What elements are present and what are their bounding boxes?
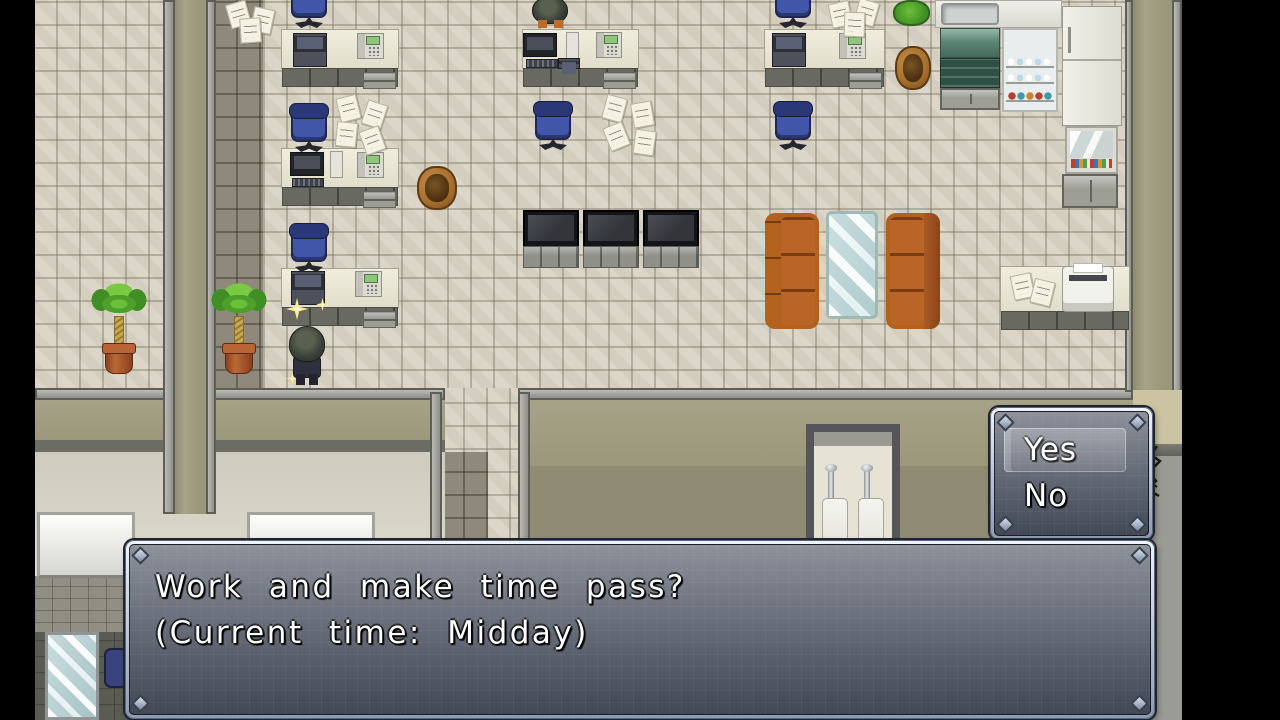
computer-tower xyxy=(566,32,579,59)
keyboard xyxy=(526,59,558,68)
keyboard xyxy=(292,178,324,187)
desk-panel xyxy=(1001,311,1129,330)
potted-plant xyxy=(102,282,136,378)
glass-table xyxy=(826,211,878,319)
tv-stand xyxy=(583,246,639,268)
barrel xyxy=(417,166,457,210)
green-counter xyxy=(940,28,1000,58)
desk-phone xyxy=(357,33,384,59)
papers xyxy=(630,100,655,128)
cup-row xyxy=(1006,56,1054,68)
plant-pot xyxy=(105,344,133,374)
whiteboard xyxy=(37,512,135,578)
player-hair xyxy=(289,326,325,362)
desk-drawer xyxy=(363,72,396,89)
papers xyxy=(335,121,358,148)
couch-backrest xyxy=(765,213,781,329)
desk-phone xyxy=(596,32,622,58)
wall-cap xyxy=(35,388,175,400)
potted-plant xyxy=(222,282,256,378)
laptop xyxy=(293,33,327,67)
right-wall xyxy=(1133,0,1173,392)
npc-shoulder xyxy=(538,20,547,28)
right-wall-outer-cap xyxy=(1172,0,1182,456)
green-cabinet-drawers xyxy=(940,58,1000,88)
corner-ornament-icon xyxy=(134,697,147,710)
office-chair xyxy=(291,230,327,262)
corner-ornament-icon xyxy=(1131,518,1144,531)
corner-ornament-icon xyxy=(134,549,147,562)
game-screen: Yes No Work and make time pass? (Current… xyxy=(0,0,1280,720)
monitor xyxy=(523,33,557,57)
choice-label: No xyxy=(1024,474,1142,519)
corner-ornament-icon xyxy=(999,518,1012,531)
laptop-small xyxy=(558,58,580,69)
message-line: Work and make time pass? xyxy=(155,564,1115,610)
refrigerator xyxy=(1062,6,1122,126)
desk-drawer xyxy=(363,191,396,208)
wall-cap xyxy=(518,388,1133,400)
desk-drawer xyxy=(849,72,882,89)
desk-phone xyxy=(357,152,384,178)
couch xyxy=(886,213,940,329)
divider-wall-cap xyxy=(206,0,216,514)
tv-screen xyxy=(583,210,639,248)
npc-sprite xyxy=(532,0,568,28)
wall-cap xyxy=(430,392,442,542)
computer-tower xyxy=(330,151,343,178)
message-line: (Current time: Midday) xyxy=(155,610,1115,656)
corner-ornament-icon xyxy=(999,416,1012,429)
papers xyxy=(632,129,656,157)
papers xyxy=(844,12,866,38)
urinal-pipe xyxy=(864,470,870,500)
choice-option-no[interactable]: No xyxy=(1008,474,1142,519)
corner-ornament-icon xyxy=(1133,697,1146,710)
bottle-row xyxy=(1006,90,1054,102)
couch-cushions xyxy=(890,217,924,325)
desk-drawer xyxy=(603,72,636,89)
rooms-wall-top xyxy=(35,398,445,442)
laptop xyxy=(291,271,325,305)
npc-shoulder xyxy=(554,20,563,28)
urinal-pipe xyxy=(828,470,834,500)
player-sprite xyxy=(288,326,326,386)
couch-cushions xyxy=(781,217,815,325)
desk-phone xyxy=(355,271,382,297)
office-chair xyxy=(775,108,811,140)
corner-ornament-icon xyxy=(1133,549,1146,562)
plant-pot xyxy=(225,344,253,374)
cabinet-base xyxy=(940,88,1000,110)
message-text-block: Work and make time pass? (Current time: … xyxy=(155,564,1115,684)
desk-drawer xyxy=(363,311,396,328)
plant-leaves xyxy=(91,282,147,322)
office-chair xyxy=(291,110,327,142)
divider-wall xyxy=(175,0,206,514)
potted-plant-top xyxy=(893,0,930,26)
message-window-body: Work and make time pass? (Current time: … xyxy=(129,544,1151,715)
divider-wall-cap xyxy=(163,0,175,514)
player-leg xyxy=(309,374,318,385)
tv-screen xyxy=(523,210,579,248)
barrel xyxy=(895,46,931,90)
dish-shelf xyxy=(1002,28,1058,112)
papers xyxy=(239,17,262,43)
sink xyxy=(941,3,999,25)
tv-stand xyxy=(643,246,699,268)
office-chair xyxy=(775,0,811,18)
bookshelf xyxy=(1065,126,1118,174)
corner-ornament-icon xyxy=(1131,416,1144,429)
bathroom-interior-trim xyxy=(814,432,892,446)
office-chair xyxy=(535,108,571,140)
wall-cap xyxy=(518,392,530,542)
monitor xyxy=(290,152,324,176)
wall-cap xyxy=(208,388,445,400)
selection-cursor xyxy=(1004,428,1126,472)
couch xyxy=(765,213,819,329)
choice-window-body: Yes No xyxy=(994,411,1149,536)
tv-screen xyxy=(643,210,699,248)
player-leg xyxy=(296,374,305,385)
choice-window: Yes No xyxy=(990,407,1153,540)
corridor-shadow xyxy=(442,452,488,540)
right-wall-cap xyxy=(1125,0,1133,392)
glass-row xyxy=(1006,72,1054,84)
couch-backrest xyxy=(924,213,940,329)
tv-stand xyxy=(523,246,579,268)
laptop xyxy=(772,33,806,67)
sliding-cabinet xyxy=(1062,174,1118,208)
office-chair xyxy=(291,0,327,18)
plant-leaves xyxy=(211,282,267,322)
message-window[interactable]: Work and make time pass? (Current time: … xyxy=(125,540,1155,719)
mirror xyxy=(45,632,99,720)
printer xyxy=(1062,266,1114,312)
